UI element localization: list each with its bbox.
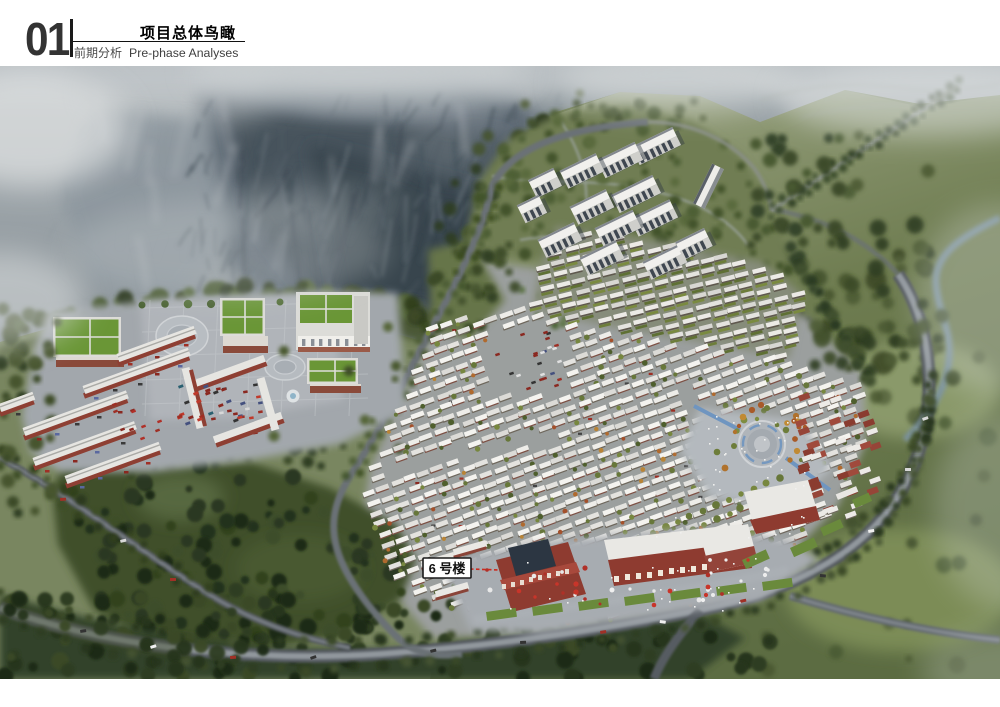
svg-text:6 号楼: 6 号楼 (429, 561, 466, 576)
